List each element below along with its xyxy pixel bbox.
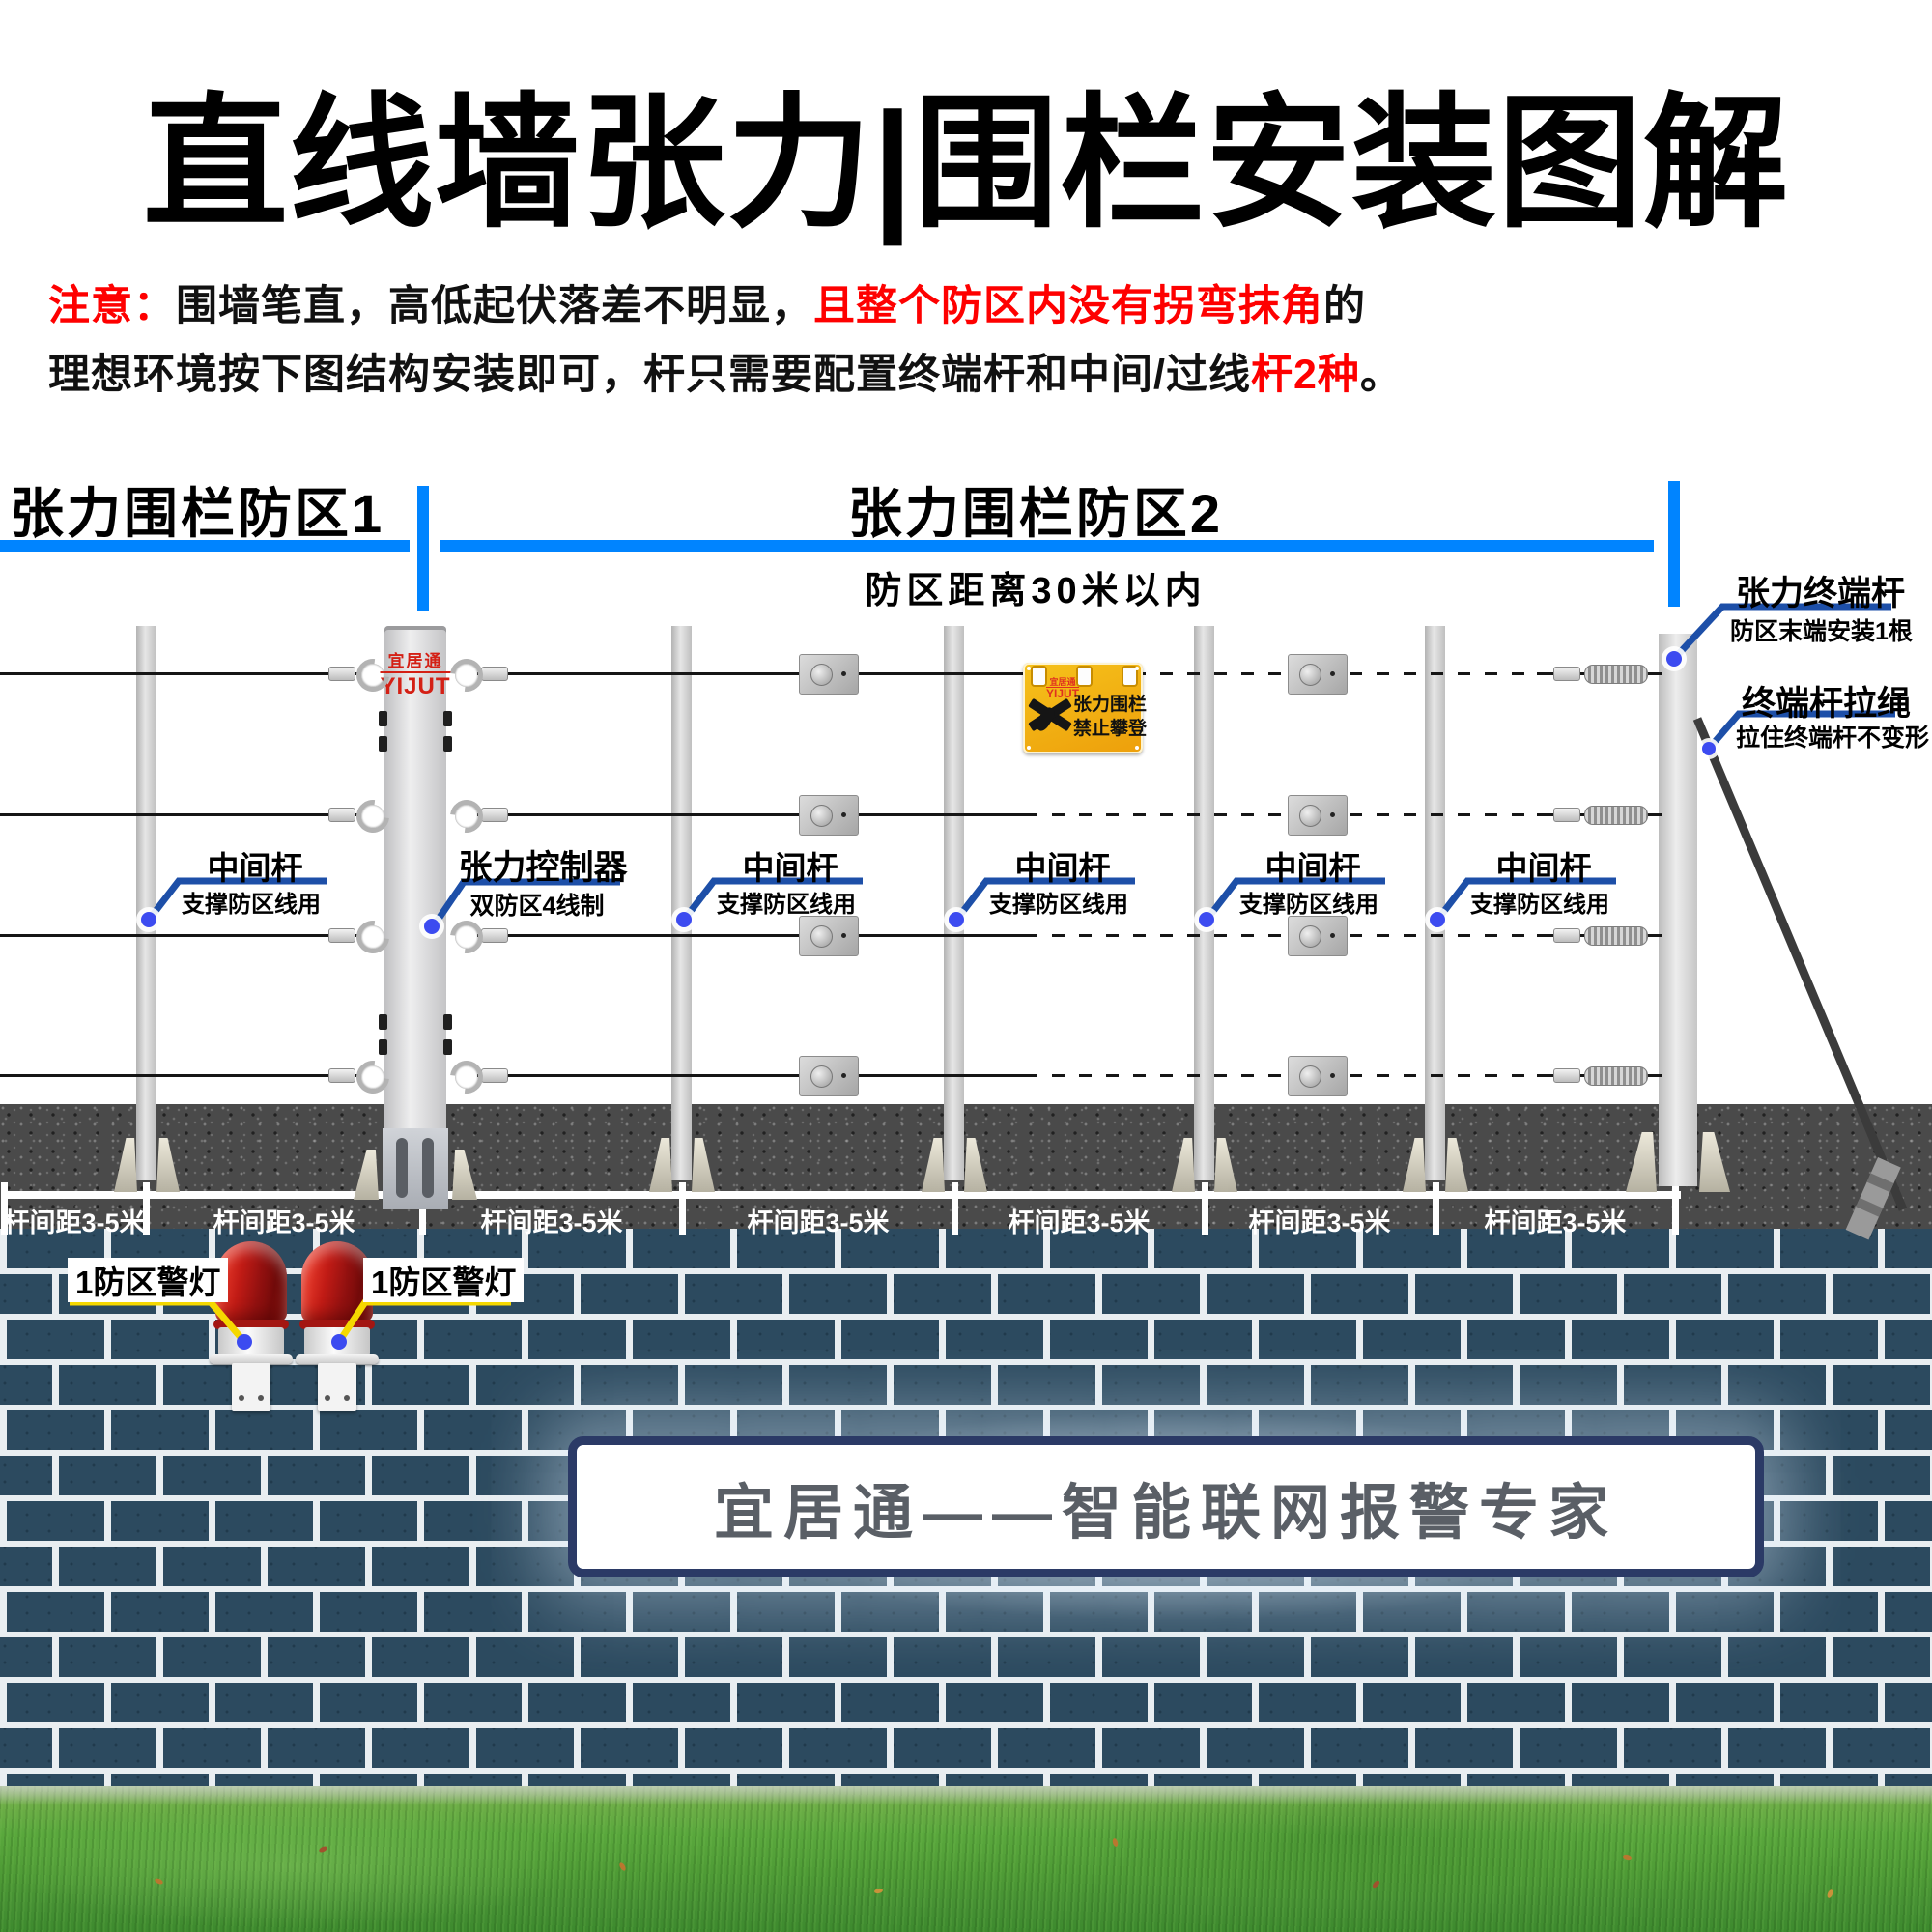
middle-post-label: 中间杆	[1015, 842, 1111, 889]
brand-slogan-panel: 宜居通——智能联网报警专家	[568, 1436, 1764, 1577]
rope-anchor	[1846, 1157, 1901, 1239]
zone1-light-label-2: 1防区警灯	[363, 1258, 524, 1302]
controller-label: 张力控制器	[458, 840, 627, 890]
middle-post-sublabel: 支撑防区线用	[1470, 885, 1609, 919]
terminal-pull-rope	[1697, 719, 1903, 1209]
controller-sublabel: 双防区4线制	[470, 887, 605, 922]
middle-post-sublabel: 支撑防区线用	[1239, 885, 1378, 919]
pointer-dots	[136, 646, 1719, 1350]
middle-post-sublabel: 支撑防区线用	[182, 885, 321, 919]
rope-sublabel: 拉住终端杆不变形	[1736, 719, 1929, 753]
middle-post-label: 中间杆	[1496, 842, 1592, 889]
middle-post-label: 中间杆	[1265, 842, 1361, 889]
middle-post-sublabel: 支撑防区线用	[989, 885, 1128, 919]
installation-poster: 直线墙张力|围栏安装图解 注意：围墙笔直，高低起伏落差不明显，且整个防区内没有拐…	[0, 0, 1932, 1932]
terminal-sublabel: 防区末端安装1根	[1730, 612, 1913, 647]
middle-post-label: 中间杆	[743, 842, 838, 889]
leader-lines-layer	[0, 0, 1932, 1932]
terminal-label: 张力终端杆	[1736, 566, 1905, 615]
middle-post-sublabel: 支撑防区线用	[717, 885, 856, 919]
zone1-light-label: 1防区警灯	[68, 1258, 228, 1302]
middle-post-label: 中间杆	[208, 842, 303, 889]
